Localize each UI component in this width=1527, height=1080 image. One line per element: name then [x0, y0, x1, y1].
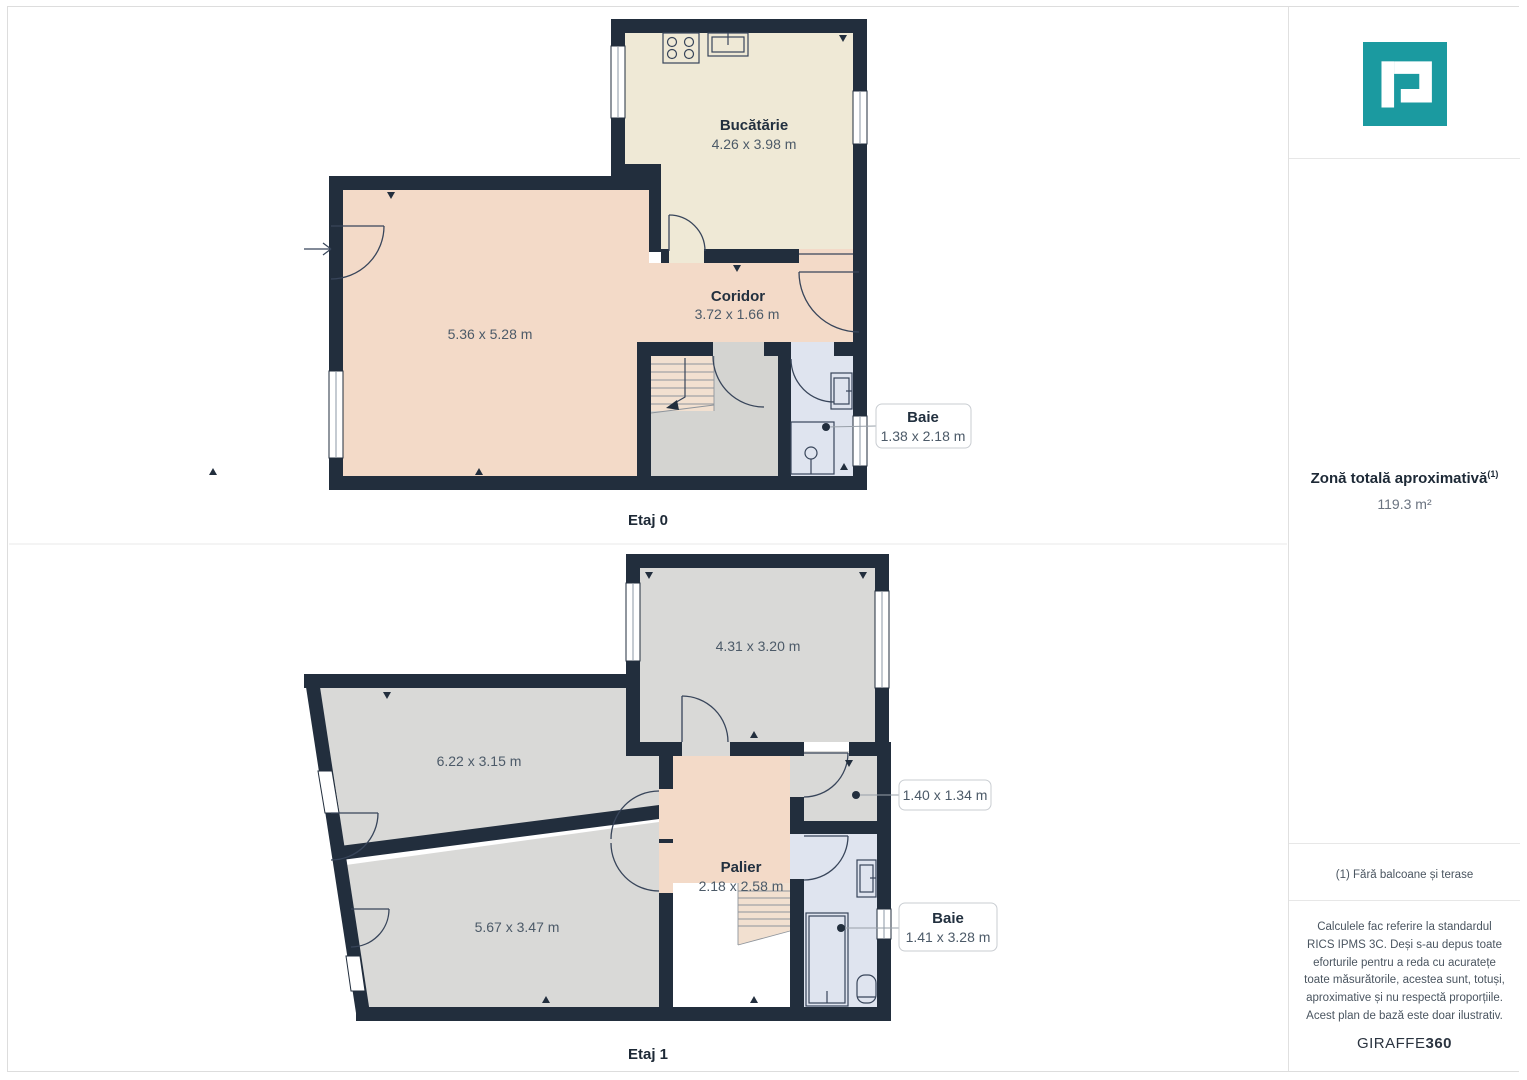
sidebar-divider-3 — [1289, 900, 1520, 901]
stairs-etaj0 — [651, 356, 714, 413]
bath0-door-gap — [791, 342, 834, 356]
floorplan-etaj-1: 4.31 x 3.20 m 6.22 x 3.15 m 5.67 x 3.47 … — [304, 554, 997, 1063]
brand-suffix: 360 — [1425, 1035, 1452, 1052]
bath0-floor — [791, 356, 853, 476]
kitchen-label: Bucătărie — [720, 117, 788, 134]
total-area-value: 119.3 m² — [1289, 496, 1520, 512]
stair-door-gap — [713, 342, 764, 356]
room-top-dims: 4.31 x 3.20 m — [716, 638, 801, 654]
room-bottom-dims: 5.67 x 3.47 m — [475, 919, 560, 935]
sidebar-divider-1 — [1289, 158, 1520, 159]
palier-door-gap-b — [659, 843, 673, 893]
palier-dims: 2.18 x 2.58 m — [699, 878, 784, 894]
total-area-block: Zonă totală aproximativă(1) 119.3 m² — [1289, 469, 1520, 512]
sidebar-divider-2 — [1289, 843, 1520, 844]
brand-wordmark: GIRAFFE360 — [1289, 1035, 1520, 1052]
floorplan-etaj-0: Bucătărie 4.26 x 3.98 m 5.36 x 5.28 m Co… — [209, 19, 971, 529]
corridor-dims: 3.72 x 1.66 m — [695, 306, 780, 322]
palier-label: Palier — [721, 859, 762, 876]
room-left-dims: 6.22 x 3.15 m — [437, 753, 522, 769]
small-room-dims: 1.40 x 1.34 m — [903, 787, 988, 803]
total-area-title: Zonă totală aproximativă(1) — [1289, 469, 1520, 487]
room-top-door-gap — [682, 742, 730, 756]
kitchen-dims: 4.26 x 3.98 m — [712, 136, 797, 152]
small-room-floor — [804, 751, 877, 821]
palier-door-gap-a — [659, 789, 673, 839]
floor1-title: Etaj 1 — [628, 1046, 668, 1063]
brand-name: GIRAFFE — [1357, 1035, 1426, 1052]
bath0-label: Baie — [907, 409, 939, 426]
small-room-door-gap — [790, 751, 804, 797]
corridor-label: Coridor — [711, 288, 765, 305]
room-top-floor — [640, 568, 875, 742]
brand-logo — [1289, 42, 1520, 131]
floorplan-page: Bucătărie 4.26 x 3.98 m 5.36 x 5.28 m Co… — [7, 6, 1519, 1072]
disclaimer-text: Calculele fac referire la standardul RIC… — [1289, 919, 1520, 1026]
giraffe360-logo-icon — [1363, 42, 1447, 126]
footnote-text: (1) Fără balcoane și terase — [1289, 869, 1520, 881]
bath0-dims: 1.38 x 2.18 m — [881, 428, 966, 444]
total-area-title-text: Zonă totală aproximativă — [1311, 470, 1488, 487]
bath1-door-gap — [790, 834, 804, 879]
total-area-footnote-ref: (1) — [1487, 469, 1498, 479]
bath1-dims: 1.41 x 3.28 m — [906, 929, 991, 945]
living-dims: 5.36 x 5.28 m — [448, 326, 533, 342]
corridor-door-gap — [799, 249, 853, 263]
entry-arrow-icon — [304, 243, 331, 255]
kitchen-door-gap — [669, 249, 704, 263]
floor0-title: Etaj 0 — [628, 512, 668, 529]
sidebar: Zonă totală aproximativă(1) 119.3 m² (1)… — [1288, 7, 1520, 1071]
bath1-label: Baie — [932, 910, 964, 927]
